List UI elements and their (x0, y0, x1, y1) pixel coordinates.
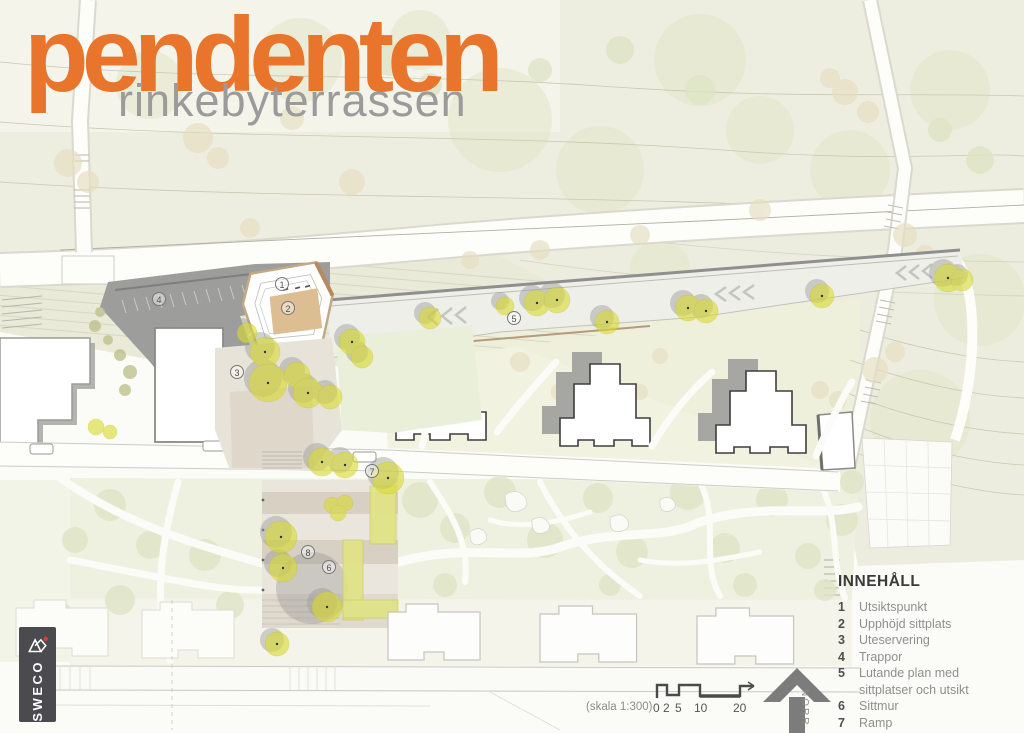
plan-marker-6: 6 (322, 560, 336, 574)
plan-marker-1: 1 (275, 277, 289, 291)
legend-item-label: Ramp (859, 715, 997, 732)
sweco-logo: SWECO (19, 627, 56, 722)
legend-item-num: 7 (838, 715, 848, 732)
legend-item: 4 Trappor (838, 649, 1006, 666)
scale-bar-figure (650, 678, 768, 702)
north-arrow-icon (758, 664, 838, 733)
legend-item-label: Sittmur (859, 698, 997, 715)
plan-marker-3: 3 (230, 365, 244, 379)
scale-tick-2: 2 (663, 701, 670, 715)
scale-tick-5: 5 (675, 701, 682, 715)
plan-marker-2: 2 (281, 301, 295, 315)
legend-item-num: 2 (838, 616, 848, 633)
legend-item-label: Upphöjd sittplats (859, 616, 997, 633)
legend-item-label: Lutande plan med sittplatser och utsikt (859, 665, 997, 698)
legend-item: 5 Lutande plan med sittplatser och utsik… (838, 665, 1006, 698)
legend-item-num: 1 (838, 599, 848, 616)
legend-item-label: Utsiktspunkt (859, 599, 997, 616)
legend-item-label: Trappor (859, 649, 997, 666)
sweco-logo-mark-icon (26, 635, 50, 654)
project-subtitle: rinkebyterrassen (118, 78, 467, 123)
site-plan-poster: pendenten rinkebyterrassen 1 2 3 4 5 6 7… (0, 0, 1024, 733)
legend-item: 6 Sittmur (838, 698, 1006, 715)
legend-item-num: 6 (838, 698, 848, 715)
legend-item: 3 Uteservering (838, 632, 1006, 649)
legend-item: 1 Utsiktspunkt (838, 599, 1006, 616)
legend-heading: INNEHÅLL (838, 573, 1006, 591)
scale-tick-0: 0 (653, 701, 660, 715)
legend-item: 7 Ramp (838, 715, 1006, 732)
right-plaza (862, 438, 952, 548)
scale-label: (skala 1:300) (586, 701, 652, 713)
scale-tick-10: 10 (694, 701, 707, 715)
north-label: NORR (799, 689, 810, 726)
scale-tick-20: 20 (733, 701, 746, 715)
legend-item-num: 3 (838, 632, 848, 649)
plan-marker-4: 4 (152, 292, 166, 306)
legend: INNEHÅLL 1 Utsiktspunkt 2 Upphöjd sittpl… (838, 573, 1006, 733)
legend-item: 2 Upphöjd sittplats (838, 616, 1006, 633)
plan-marker-8: 8 (301, 545, 315, 559)
legend-item-num: 4 (838, 649, 848, 666)
legend-item-label: Uteservering (859, 632, 997, 649)
sweco-logo-text: SWECO (30, 660, 45, 722)
plan-marker-7: 7 (365, 464, 379, 478)
plan-marker-5: 5 (507, 311, 521, 325)
legend-item-num: 5 (838, 665, 848, 698)
